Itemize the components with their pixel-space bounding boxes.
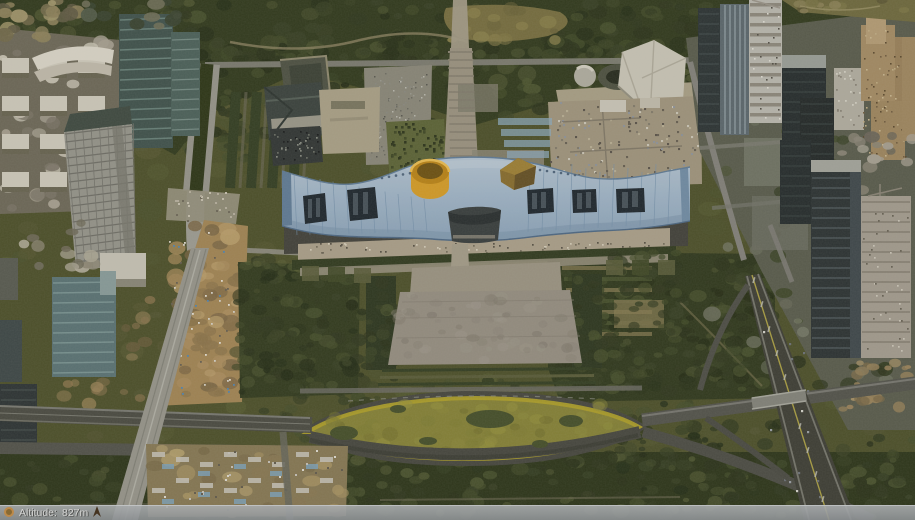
svg-text:Altitude:: Altitude: [19,507,57,519]
svg-text:827m: 827m [62,507,89,519]
